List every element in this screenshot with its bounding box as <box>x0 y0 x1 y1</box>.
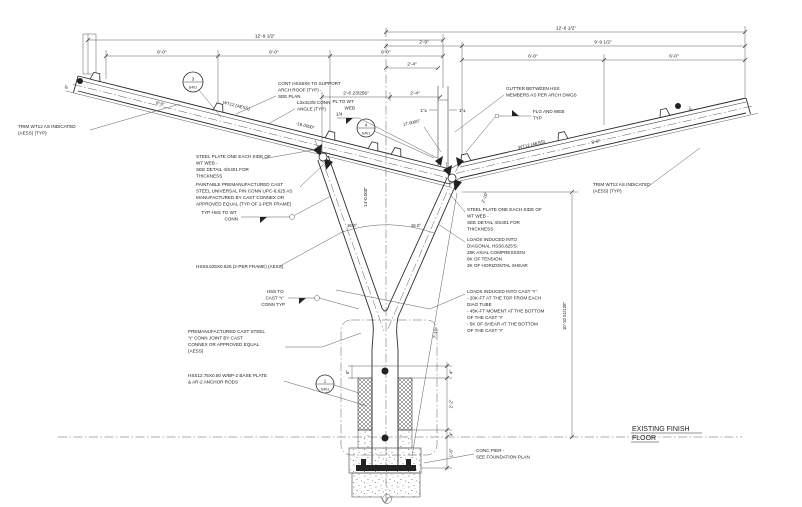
weld-symbol-hss-wt <box>241 196 331 223</box>
dim-left-total: 12'-9 1/2" <box>255 34 276 40</box>
dim-base-4-bot: 4" <box>449 432 454 436</box>
dim-node-offset: 2'-10" <box>480 191 489 204</box>
dim-y-height: 7'-10" <box>432 326 439 338</box>
note-cast-y: PREMANUFACTURED CAST STEEL 'Y' CONN JOIN… <box>188 329 266 354</box>
dim-base-4-top: 4" <box>449 370 454 374</box>
column-pin-floor <box>382 435 389 442</box>
right-beam-wt12 <box>446 98 758 186</box>
note-gutter: GUTTER BETWEEN HSS MEMBERS AS PER ARCH D… <box>506 86 577 98</box>
dim-right-beam-run: 8'-0" <box>591 138 601 145</box>
diagonal-hss-and-cast-y: 16.0° 16.0° <box>313 144 464 467</box>
note-flg-web: FLG AND WEB TYP <box>533 109 566 121</box>
floor-line2: FLOOR <box>632 435 656 442</box>
dim-gutter-left: 1"± <box>420 108 427 113</box>
right-end-pin <box>675 103 681 109</box>
dim-arc-right: 16.0° <box>411 223 422 228</box>
right-pin-connector <box>443 165 462 191</box>
dim-bp-6: 6" <box>345 370 350 374</box>
detail-bubble-1: 1 S401 <box>316 375 359 393</box>
note-base: HSS12.75X0.50 W/BP-2 BASE PLATE & AR-2 A… <box>188 373 268 385</box>
dim-base-2-2: 2'-2" <box>449 399 454 408</box>
base-plate <box>356 465 416 471</box>
floor-line1: EXISTING FINISH <box>632 426 690 433</box>
note-hss-cast: HSS TO CAST 'Y' CONN TYP <box>261 289 285 307</box>
dim-left-seg-3: 6'-0" <box>381 50 391 56</box>
svg-text:S401: S401 <box>362 132 370 136</box>
dim-angle-right-beam: 17.0000° <box>403 118 422 127</box>
y-column-elevation-drawing: 12'-9 1/2" 6'-0" 6'-0" 6'-0" 12'-6 1/2" … <box>0 0 802 507</box>
note-loads-cast: LOADS INDUCED INTO CAST 'Y': - 20K-FT AT… <box>467 289 546 333</box>
dim-left-seg-1: 6'-0" <box>157 50 167 56</box>
dim-right-seg-2: 6'-0" <box>669 54 679 60</box>
note-plate-left: STEEL PLATE ONE EACH SIDE OF WT WEB - SE… <box>196 154 272 179</box>
note-pl-to-wt: PL TO WT WEB <box>332 99 355 111</box>
detail-bubble-3: 3 S401 <box>183 72 221 117</box>
top-dimensions: 12'-9 1/2" 6'-0" 6'-0" 6'-0" 12'-6 1/2" … <box>83 26 747 159</box>
note-conn-angle: L3x3x3/8 CONN ANGLE (TYP) <box>297 100 332 112</box>
dim-left-seg-2: 6'-0" <box>269 50 279 56</box>
note-cast-pin: PAINTABLE PREMANUFACTURED CAST STEEL UNI… <box>196 182 294 207</box>
dim-left-beam-run: 8'-0" <box>156 100 166 107</box>
drawing-sheet: 12'-9 1/2" 6'-0" 6'-0" 6'-0" 12'-6 1/2" … <box>0 0 802 507</box>
dim-base-1-6: 1'-6" <box>449 448 454 457</box>
weld-size: 1/4 <box>336 112 343 117</box>
note-cont-hss: CONT HSS6X6 TO SUPPORT ARCH ROOF (TYP) -… <box>278 81 342 99</box>
left-end-pin <box>77 78 83 84</box>
dim-center-lower-right: 2'-4" <box>410 91 420 97</box>
dim-arc-left: 16.0° <box>347 223 358 228</box>
dim-angle-left-beam: -16.0000° <box>295 121 315 131</box>
floor-label: EXISTING FINISH FLOOR <box>631 426 702 442</box>
note-typ-hss-wt: TYP HSS TO WT CONN <box>201 210 238 222</box>
svg-text:S401: S401 <box>189 86 197 90</box>
dim-right-a: 2'-9" <box>419 40 429 46</box>
member-labels: WT12 (AESS) 8'-0" -16.0000° WT12 (AESS) … <box>64 84 694 152</box>
dim-right-end: 6" <box>688 106 694 112</box>
dim-gutter-right: 1"± <box>459 108 466 113</box>
valley-plate-connector <box>435 156 464 167</box>
svg-text:S401: S401 <box>321 388 329 392</box>
dim-left-end: 6" <box>64 84 70 90</box>
weld-symbol-hss-cast <box>288 296 359 310</box>
dim-diag-axis: 14'-0.000" <box>363 187 368 207</box>
note-plate-right: STEEL PLATE ONE EACH SIDE OF WT WEB - SE… <box>467 207 543 232</box>
footing <box>352 473 420 503</box>
left-beam-wt12 <box>66 72 452 188</box>
weld-symbol-quarter: 1/4 <box>336 112 437 159</box>
gutter-section: 1"± 1"± <box>420 86 466 168</box>
column-pin-upper <box>382 368 389 375</box>
dim-center-lower-left: 2'-6 23/256" <box>343 91 369 97</box>
note-conc-pier: CONC PIER - SEE FOUNDATION PLAN <box>476 448 530 460</box>
label-wt12-left: WT12 (AESS) <box>222 100 250 112</box>
dim-right-total: 12'-6 1/2" <box>556 26 577 32</box>
dim-center-upper: 2'-4" <box>407 62 417 68</box>
note-hss-diag: HSS6.625X0.625 (2-PER FRAME) (AESS) <box>196 264 284 269</box>
dim-right-b: 9'-9 1/2" <box>594 40 612 46</box>
dim-right-seg-1: 6'-0" <box>528 54 538 60</box>
dim-overall-height: 10'-10 51/128" <box>562 301 567 330</box>
note-trim-right: TRIM WT12 AS INDICATED (AESS) (TYP) <box>593 182 652 194</box>
note-loads-diag: LOADS INDUCED INTO DIAGONAL HSS6.625'S: … <box>467 237 528 268</box>
note-trim-left: TRIM WT12 AS INDICATED (AESS) (TYP) <box>18 124 77 136</box>
